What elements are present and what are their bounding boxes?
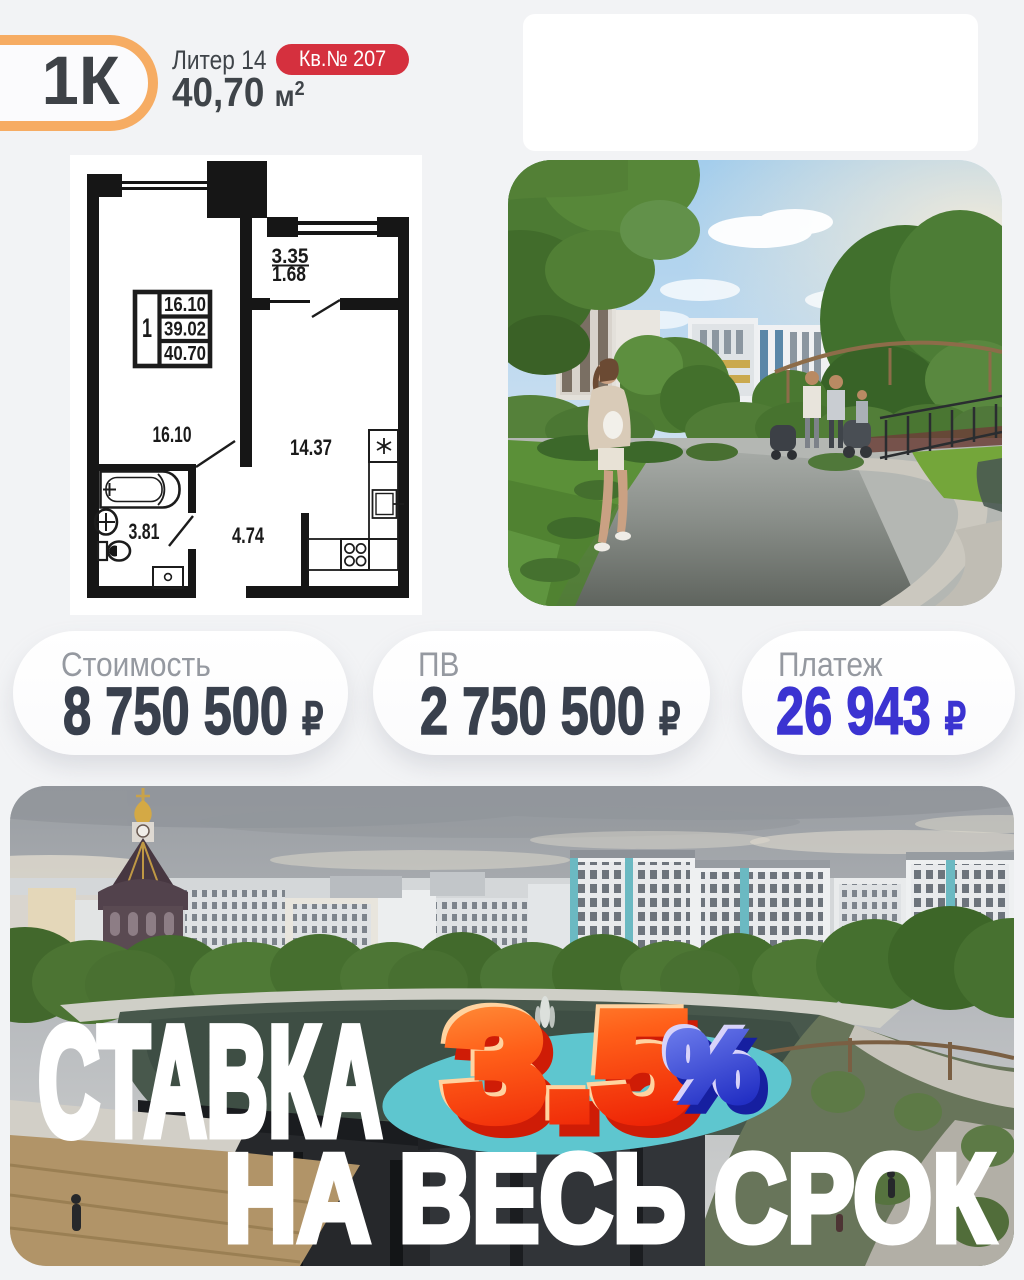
svg-text:40.70: 40.70 <box>164 343 206 365</box>
svg-text:1: 1 <box>142 313 152 343</box>
svg-text:39.02: 39.02 <box>164 319 206 341</box>
svg-text:3.5: 3.5 <box>447 982 692 1150</box>
svg-text:3.81: 3.81 <box>129 519 160 544</box>
svg-text:%: % <box>668 1012 758 1121</box>
svg-text:16.10: 16.10 <box>153 422 192 447</box>
svg-text:14.37: 14.37 <box>290 435 332 460</box>
svg-text:4.74: 4.74 <box>232 523 265 548</box>
svg-text:16.10: 16.10 <box>164 294 206 316</box>
